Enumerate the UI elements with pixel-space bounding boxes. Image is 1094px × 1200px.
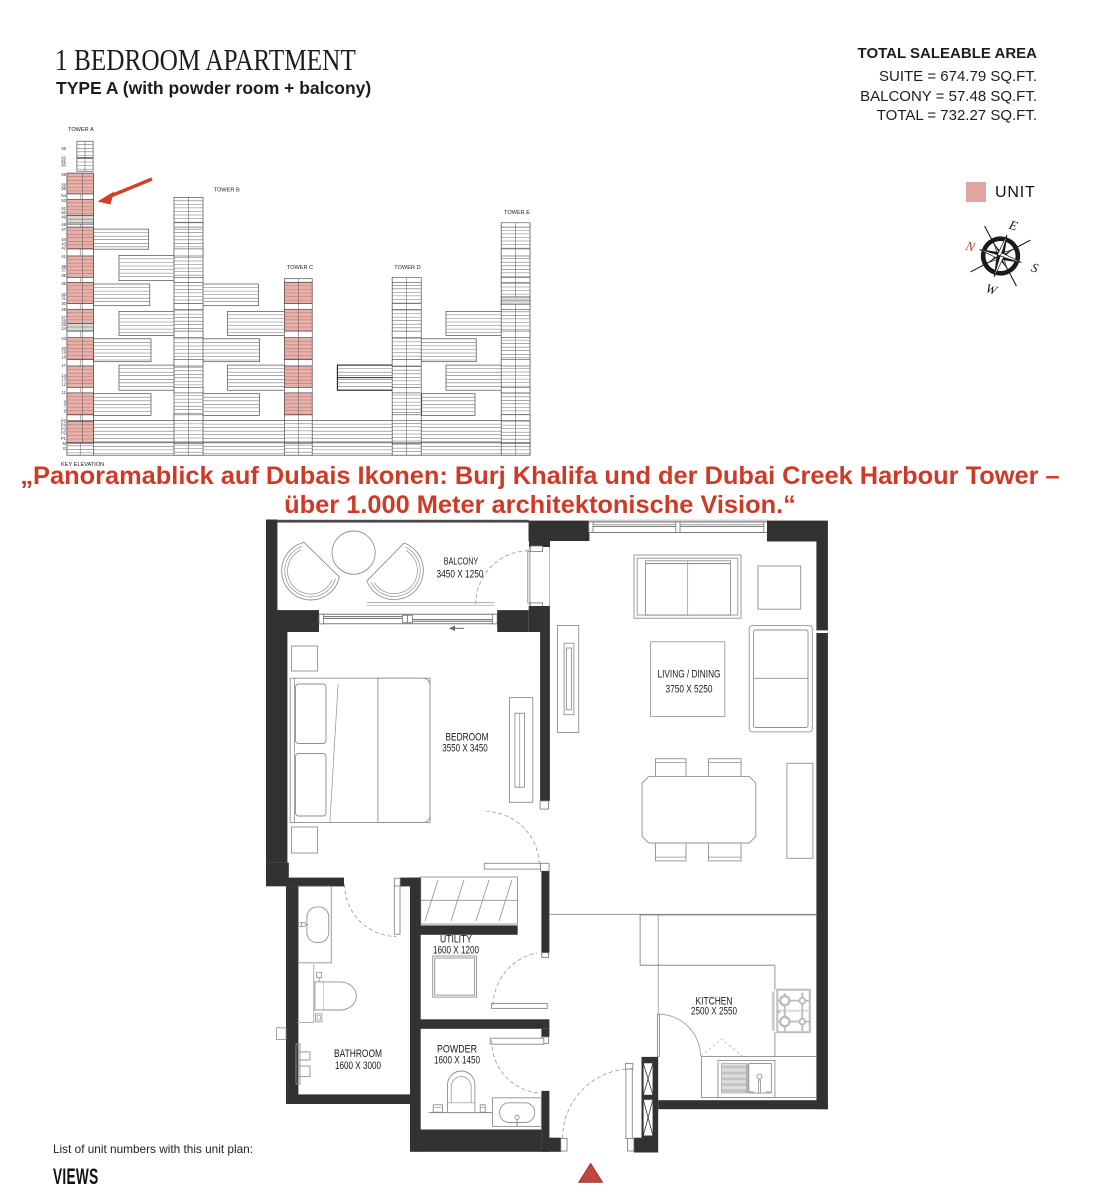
svg-text:31: 31: [61, 296, 66, 301]
svg-text:53: 53: [61, 198, 66, 203]
svg-text:1600 X 3000: 1600 X 3000: [335, 1060, 381, 1072]
svg-text:59: 59: [61, 172, 66, 177]
svg-text:N: N: [963, 237, 978, 255]
svg-text:24: 24: [61, 326, 66, 331]
svg-text:LIVING / DINING: LIVING / DINING: [658, 669, 721, 681]
svg-text:6: 6: [64, 409, 67, 414]
svg-text:E: E: [1006, 217, 1019, 234]
svg-text:TOWER D: TOWER D: [394, 265, 420, 271]
svg-text:12: 12: [61, 382, 66, 387]
svg-text:1600 X 1200: 1600 X 1200: [433, 945, 479, 957]
svg-text:G: G: [63, 446, 66, 451]
svg-text:S: S: [1030, 260, 1041, 276]
svg-text:3550 X 3450: 3550 X 3450: [442, 743, 488, 755]
svg-text:17: 17: [61, 363, 66, 368]
svg-text:TOWER E: TOWER E: [504, 210, 530, 216]
svg-text:35: 35: [61, 281, 66, 286]
svg-text:TOWER A: TOWER A: [68, 127, 94, 133]
svg-text:29: 29: [61, 307, 66, 312]
svg-text:18: 18: [61, 355, 66, 360]
svg-text:30: 30: [61, 301, 66, 306]
svg-text:41: 41: [61, 254, 66, 259]
svg-text:BALCONY: BALCONY: [444, 557, 479, 568]
svg-text:TOWER C: TOWER C: [287, 265, 313, 271]
svg-text:TOWER B: TOWER B: [214, 188, 240, 194]
svg-text:2500 X 2550: 2500 X 2550: [691, 1006, 737, 1018]
svg-text:65: 65: [61, 146, 66, 151]
svg-text:37: 37: [61, 268, 66, 273]
svg-text:KEY ELEVATION: KEY ELEVATION: [61, 462, 104, 468]
svg-text:1600 X 1450: 1600 X 1450: [434, 1055, 480, 1067]
svg-text:W: W: [984, 280, 1000, 298]
svg-text:7: 7: [64, 403, 67, 408]
svg-text:23: 23: [61, 336, 66, 341]
svg-text:11: 11: [62, 390, 67, 395]
svg-text:BATHROOM: BATHROOM: [334, 1048, 382, 1060]
svg-text:P2: P2: [61, 431, 67, 436]
svg-text:42: 42: [61, 246, 66, 251]
svg-text:55: 55: [61, 186, 66, 191]
svg-text:47: 47: [61, 227, 66, 232]
svg-text:60: 60: [61, 163, 66, 168]
svg-text:3450 X 1250: 3450 X 1250: [437, 569, 484, 581]
svg-text:3750 X 5250: 3750 X 5250: [666, 684, 713, 696]
svg-text:36: 36: [61, 273, 66, 278]
svg-text:49: 49: [61, 215, 66, 220]
